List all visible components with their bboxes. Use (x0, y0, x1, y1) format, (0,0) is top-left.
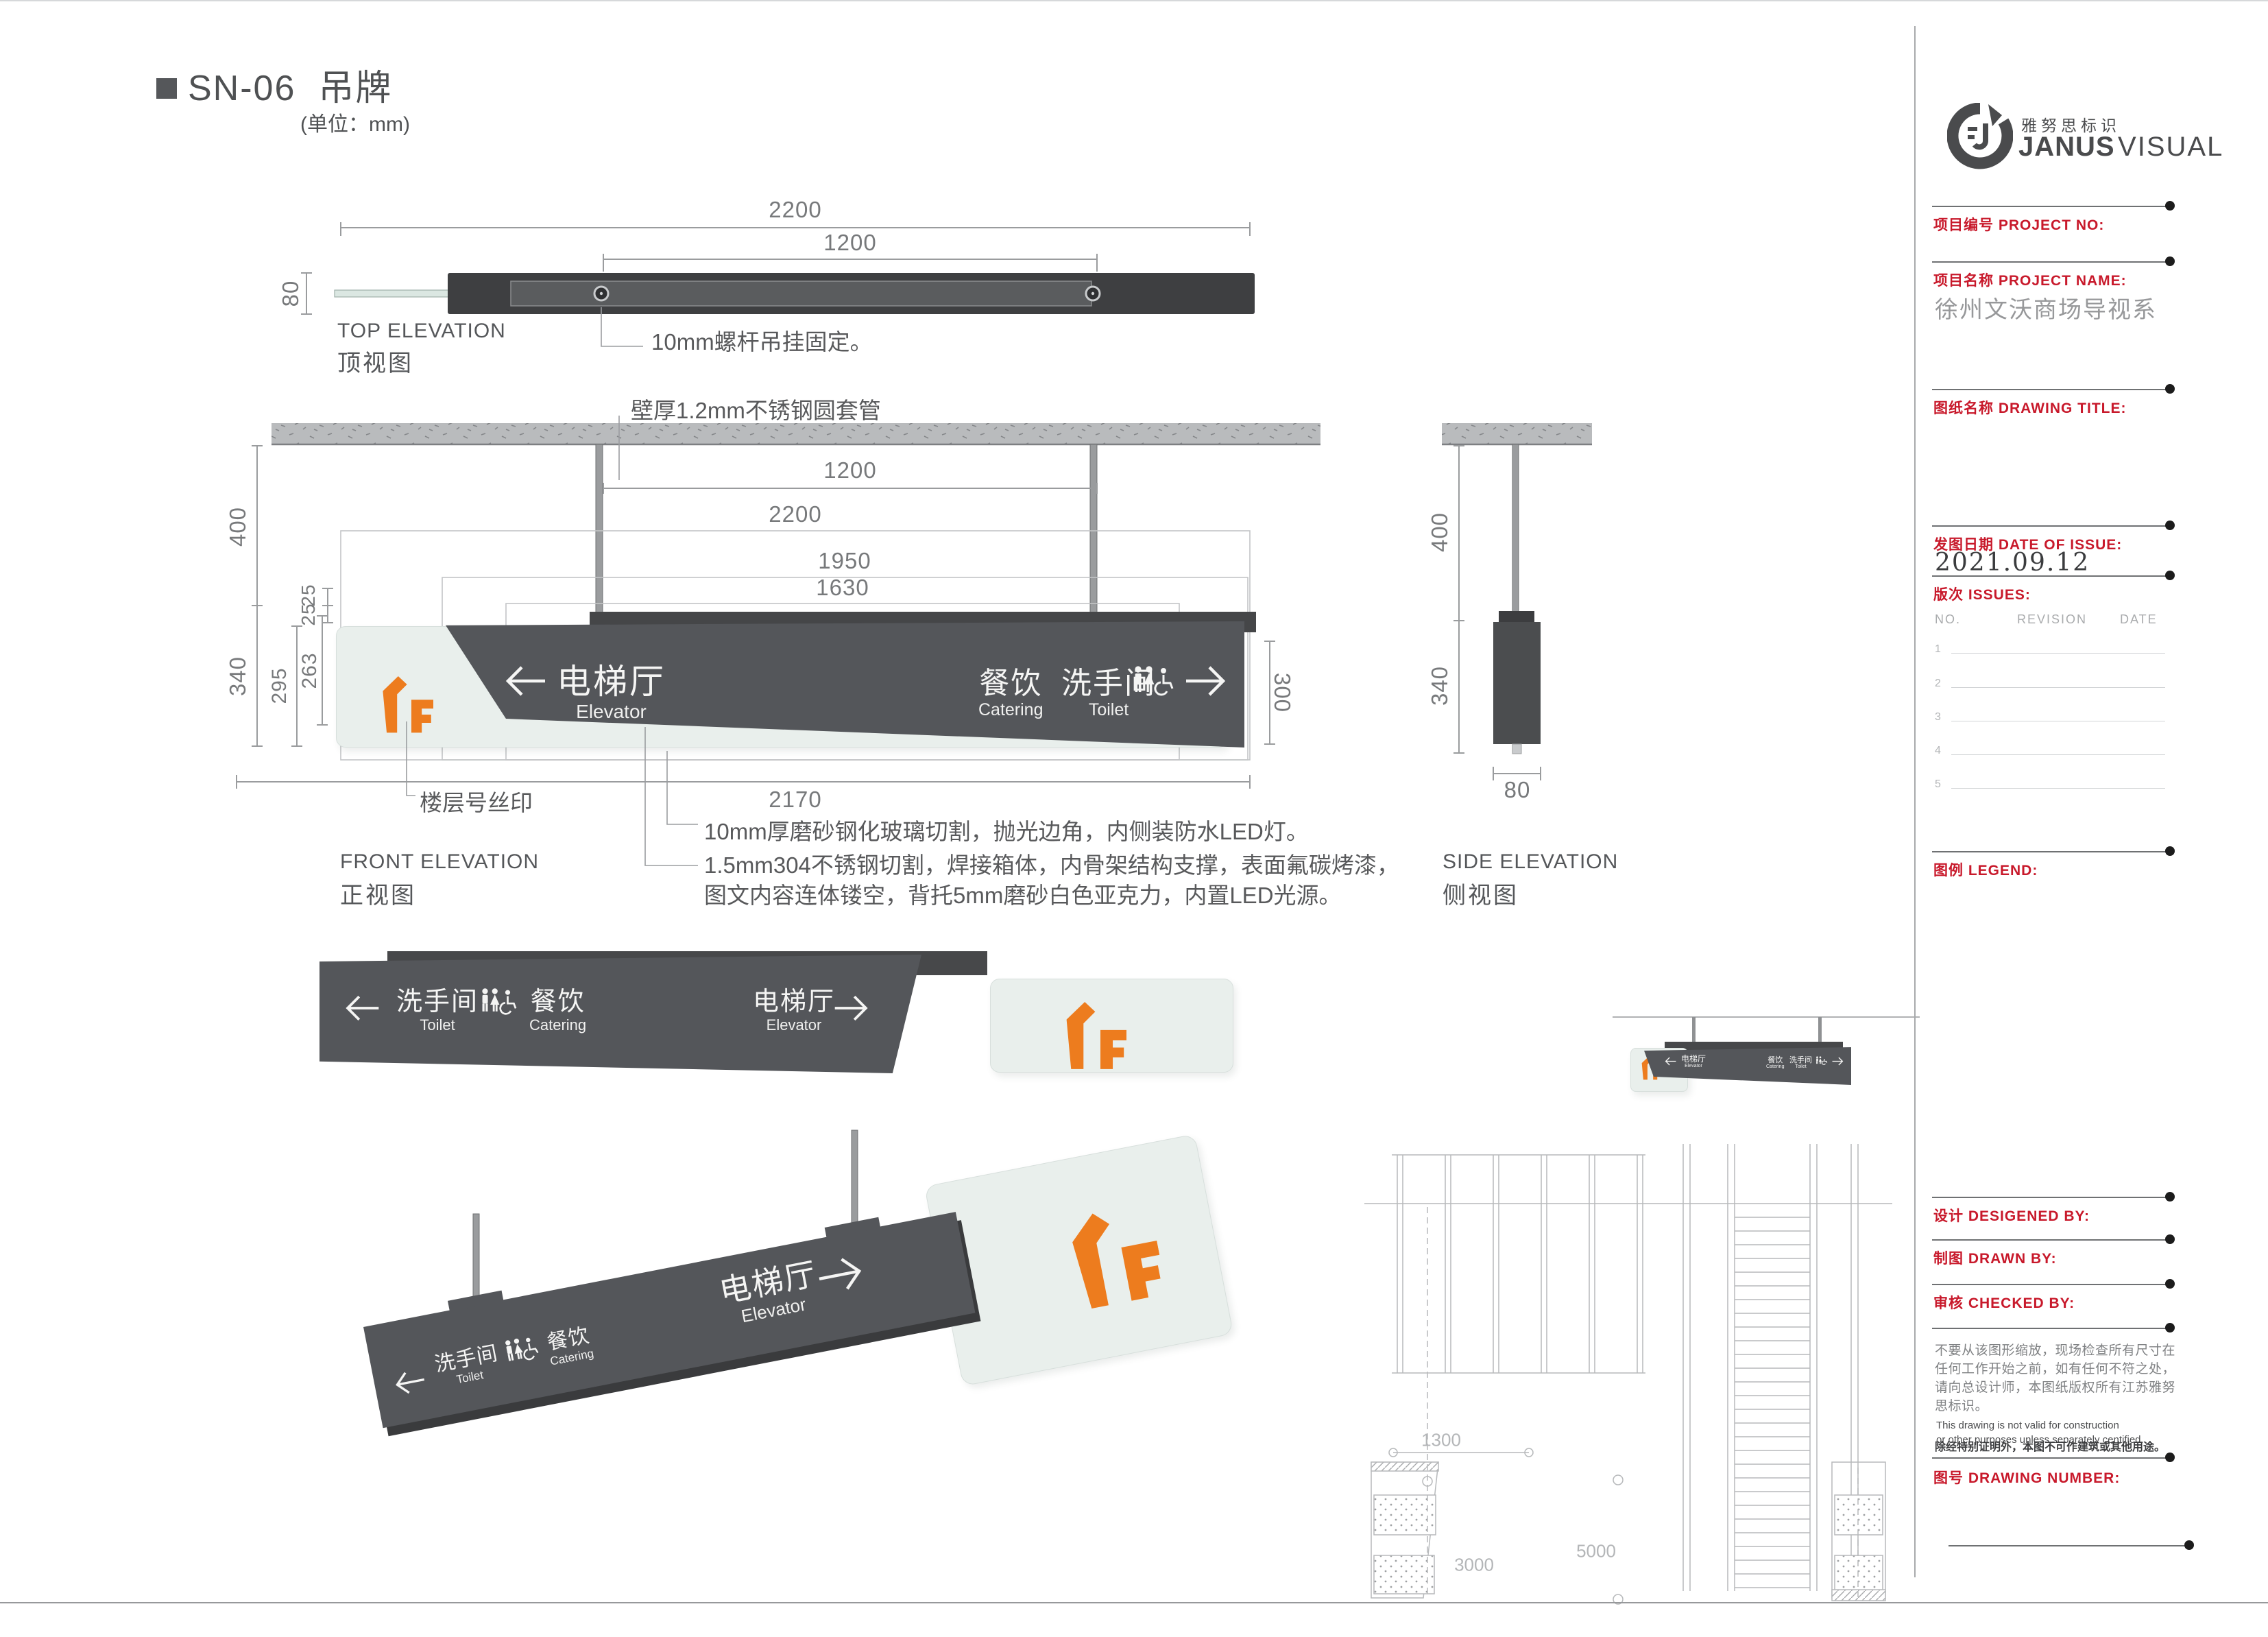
unit-note: (单位：mm) (300, 107, 410, 137)
top-elevation-label-en: TOP ELEVATION (337, 320, 506, 343)
issues-header-revision: REVISION (2017, 612, 2087, 627)
callout-steel: 1.5mm304不锈钢切割，焊接箱体，内骨架结构支撑，表面氟碳烤漆， 图文内容连… (704, 850, 1399, 911)
dim-side-340: 340 (1427, 666, 1453, 706)
issues-row-5: 5 (1935, 778, 1941, 791)
notes-en-line1: This drawing is not valid for constructi… (1936, 1418, 2144, 1433)
issues-row-2: 2 (1935, 678, 1941, 690)
dim-front-400: 400 (225, 507, 251, 547)
dim-front-25b: 25 (298, 603, 319, 625)
janus-logo-icon (1947, 103, 2013, 171)
field-project-no: 项目编号 PROJECT NO: (1933, 214, 2104, 235)
notes-cn-bold: 除经特别证明外，本图不可作建筑或其他用途。 (1935, 1437, 2165, 1454)
front-elevation-label-cn: 正视图 (340, 876, 416, 910)
drawing-sheet: 电梯厅 Elevator 餐饮 Catering 洗手间 Toilet (0, 0, 2268, 1637)
dim-front-2200: 2200 (769, 501, 821, 527)
callout-floor-number: 楼层号丝印 (420, 785, 533, 817)
field-project-name: 项目名称 PROJECT NAME: (1933, 270, 2127, 290)
dim-top-80: 80 (278, 280, 304, 307)
dim-front-1950: 1950 (818, 548, 871, 574)
dim-front-300: 300 (1269, 673, 1295, 713)
brand-en: JANUS VISUAL (2018, 132, 2223, 163)
dim-context-5000: 5000 (1576, 1541, 1616, 1562)
issues-row-4: 4 (1935, 745, 1941, 757)
dim-side-80: 80 (1504, 777, 1531, 803)
date-value: 2021.09.12 (1935, 549, 2090, 577)
dim-front-263: 263 (298, 652, 322, 689)
sign-name: 吊牌 (318, 69, 392, 108)
title-bullet (156, 78, 177, 99)
callout-glass: 10mm厚磨砂钢化玻璃切割，抛光边角，内侧装防水LED灯。 (704, 813, 1309, 846)
callout-steel-line2: 图文内容连体镂空，背托5mm磨砂白色亚克力，内置LED光源。 (704, 881, 1399, 911)
dim-side-400: 400 (1427, 512, 1453, 552)
issues-row-1: 1 (1935, 643, 1941, 656)
field-checked-by: 审核 CHECKED BY: (1933, 1292, 2075, 1313)
side-elevation-label-cn: 侧视图 (1443, 876, 1519, 910)
dim-front-340: 340 (225, 656, 251, 696)
issues-header-no: NO. (1935, 612, 1961, 627)
notes-cn-line4: 思标识。 (1935, 1397, 2175, 1415)
field-legend: 图例 LEGEND: (1933, 859, 2038, 880)
issues-header-date: DATE (2120, 612, 2158, 627)
dim-front-295: 295 (268, 667, 291, 704)
dim-front-1630: 1630 (816, 575, 869, 601)
field-drawing-title: 图纸名称 DRAWING TITLE: (1933, 397, 2126, 418)
field-drawing-number: 图号 DRAWING NUMBER: (1933, 1467, 2120, 1487)
top-elevation-label-cn: 顶视图 (337, 344, 413, 378)
side-elevation-label-en: SIDE ELEVATION (1443, 850, 1618, 874)
issues-row-3: 3 (1935, 711, 1941, 724)
field-issues: 版次 ISSUES: (1933, 584, 2031, 604)
project-name-value: 徐州文沃商场导视系 (1935, 291, 2157, 324)
dim-context-1300: 1300 (1421, 1430, 1461, 1451)
callout-steel-line1: 1.5mm304不锈钢切割，焊接箱体，内骨架结构支撑，表面氟碳烤漆， (704, 850, 1399, 881)
dim-top-1200: 1200 (823, 230, 876, 256)
notes-cn-line3: 请向总设计师，本图纸版权所有江苏雅努 (1935, 1378, 2175, 1397)
dim-context-3000: 3000 (1454, 1555, 1494, 1576)
dim-top-2200: 2200 (769, 197, 821, 223)
title-block-divider (1914, 26, 1916, 1577)
dim-front-1200: 1200 (823, 457, 876, 483)
brand-en-light: VISUAL (2118, 132, 2223, 162)
dim-front-2170: 2170 (769, 787, 821, 813)
notes-cn: 不要从该图形缩放，现场检查所有尺寸在 任何工作开始之前，如有任何不符之处， 请向… (1935, 1341, 2175, 1415)
front-elevation-label-en: FRONT ELEVATION (340, 850, 539, 874)
page-title: SN-06 吊牌 (188, 59, 392, 110)
field-designed-by: 设计 DESIGENED BY: (1933, 1205, 2090, 1226)
field-drawn-by: 制图 DRAWN BY: (1933, 1247, 2057, 1268)
callout-bolt: 10mm螺杆吊挂固定。 (651, 324, 873, 357)
callout-pipe: 壁厚1.2mm不锈钢圆套管 (631, 392, 881, 425)
brand-en-bold: JANUS (2018, 132, 2115, 162)
notes-cn-line2: 任何工作开始之前，如有任何不符之处， (1935, 1360, 2175, 1378)
sign-code: SN-06 (188, 69, 295, 108)
notes-cn-line1: 不要从该图形缩放，现场检查所有尺寸在 (1935, 1341, 2175, 1360)
title-block: 雅努思标识 JANUS VISUAL 项目编号 PROJECT NO: 项目名称… (1914, 0, 2268, 1637)
